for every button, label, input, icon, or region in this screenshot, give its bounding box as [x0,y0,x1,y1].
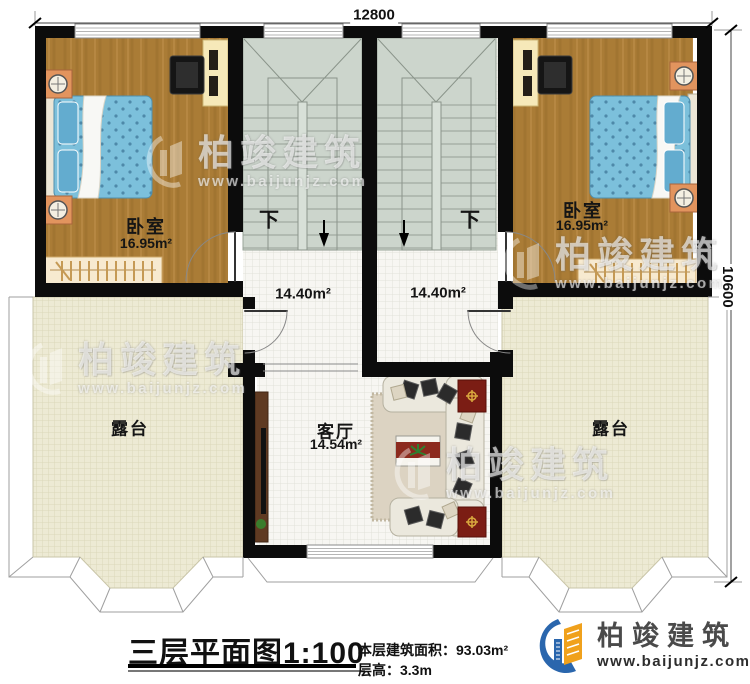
bedroom-left-area: 16.95m² [120,235,172,251]
floor-plan-drawing [0,0,750,684]
tv [261,428,266,514]
living-room-area: 14.54m² [310,436,362,452]
stair-down-label-left: 下 [259,204,279,233]
tv-console [513,40,538,106]
plant [256,519,266,529]
floor-area-note: 本层建筑面积：93.03m² [358,640,508,660]
stair-down-label-right: 下 [460,204,480,233]
terrace-left-label: 露台 [111,415,149,440]
terrace-right-label: 露台 [592,415,630,440]
terrace-right-floor [502,297,708,588]
floor-height-note: 层高：3.3m [358,660,432,680]
floor-plan-page: 12800 10600 卧室 16.95m² 卧室 16.95m² 下 下 14… [0,0,750,684]
dimension-right: 10600 [719,264,736,310]
dimension-top: 12800 [350,7,398,24]
window [402,24,480,38]
window [307,545,433,558]
window [547,24,672,38]
tv-console [203,40,228,106]
brand-name: 柏竣建筑 [597,623,750,650]
title-underline-thick [128,664,356,668]
bedroom-right-area: 16.95m² [556,217,608,233]
floor-area-label: 本层建筑面积： [358,642,456,658]
floor-area-value: 93.03m² [456,642,508,658]
floor-mat [458,380,486,412]
pillow [58,102,78,144]
brand-logo: 柏竣建筑 www.baijunjz.com [536,615,750,677]
floor-mat [458,507,486,537]
pillow [58,150,78,192]
window [264,24,343,38]
floor-height-value: 3.3m [400,662,432,678]
stairhall-right-area: 14.40m² [410,285,466,302]
terrace-left-floor [33,297,243,588]
pillow [664,102,684,144]
title-underline-thin [128,670,365,672]
floor-height-label: 层高： [358,662,400,678]
brand-url: www.baijunjz.com [597,654,750,669]
stairhall-left-area: 14.40m² [275,286,331,303]
window [75,24,200,38]
coffee-table [396,436,440,466]
brand-logo-icon [536,615,590,677]
